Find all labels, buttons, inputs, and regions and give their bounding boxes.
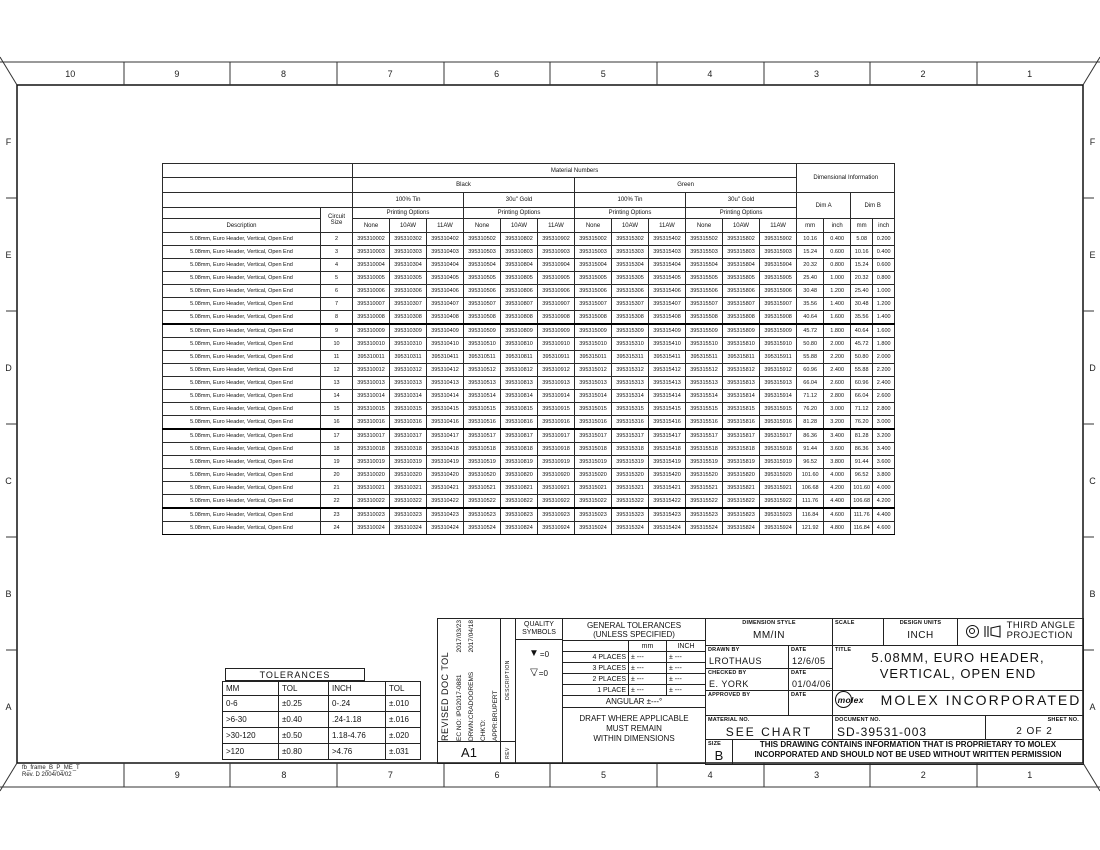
part-number-cell: 395315806 [723,285,760,298]
part-number-cell: 395310411 [427,351,464,364]
part-number-cell: 395310415 [427,403,464,416]
part-number-cell: 395315408 [649,311,686,325]
proprietary-line: THIS DRAWING CONTAINS INFORMATION THAT I… [733,740,1083,750]
part-number-cell: 395315017 [575,429,612,443]
part-number-cell: 395310307 [390,298,427,311]
options-header: Printing Options [686,208,797,219]
zone-label: 8 [230,69,337,79]
part-number-cell: 395310418 [427,443,464,456]
part-number-cell: 395310407 [427,298,464,311]
dim-b-inch-cell: 4.200 [873,495,895,509]
part-number-cell: 395315005 [575,272,612,285]
stamp-line: Rev. D 2004/04/02 [22,772,80,779]
part-number-cell: 395315018 [575,443,612,456]
circuit-size-cell: 6 [321,285,353,298]
quality-symbol-value: =0 [539,669,548,678]
zone-label: 9 [124,69,231,79]
gt-blank-cell [563,641,629,652]
dim-a-mm-cell: 116.84 [797,508,824,522]
part-number-cell: 395315524 [686,522,723,535]
part-number-cell: 395315424 [649,522,686,535]
option-11aw-header: 11AW [760,219,797,233]
options-header: Printing Options [575,208,686,219]
part-number-cell: 395310021 [353,482,390,495]
part-number-cell: 395310914 [538,390,575,403]
dim-a-inch-cell: 3.800 [824,456,851,469]
part-number-cell: 395315314 [612,390,649,403]
part-number-cell: 395315817 [723,429,760,443]
projection-text: PROJECTION [1007,631,1076,641]
part-number-cell: 395315022 [575,495,612,509]
part-number-cell: 395315502 [686,233,723,246]
part-number-cell: 395310323 [390,508,427,522]
part-number-cell: 395310911 [538,351,575,364]
part-number-cell: 395310002 [353,233,390,246]
part-number-cell: 395315812 [723,364,760,377]
part-number-cell: 395310815 [501,403,538,416]
part-number-cell: 395310305 [390,272,427,285]
part-number-cell: 395310913 [538,377,575,390]
dim-a-mm-cell: 121.92 [797,522,824,535]
dim-a-mm-cell: 81.28 [797,416,824,430]
part-number-cell: 395310809 [501,324,538,338]
dim-a-mm-cell: 91.44 [797,443,824,456]
part-number-cell: 395315421 [649,482,686,495]
zone-label: A [2,650,15,763]
part-number-cell: 395310319 [390,456,427,469]
zone-label: D [1086,311,1099,424]
table-row: 5.08mm, Euro Header, Vertical, Open End … [163,522,895,535]
part-number-cell: 395310022 [353,495,390,509]
size-cell: SIZE B [706,740,733,765]
option-10aw-header: 10AW [501,219,538,233]
dim-b-mm-cell: 111.76 [851,508,873,522]
proprietary-notice: THIS DRAWING CONTAINS INFORMATION THAT I… [733,740,1084,765]
part-number-cell: 395315311 [612,351,649,364]
dim-b-mm-cell: 116.84 [851,522,873,535]
part-number-cell: 395310920 [538,469,575,482]
circuit-size-cell: 4 [321,259,353,272]
part-number-cell: 395310403 [427,246,464,259]
part-number-cell: 395310006 [353,285,390,298]
circuit-size-cell: 22 [321,495,353,509]
part-number-cell: 395310905 [538,272,575,285]
part-number-cell: 395310306 [390,285,427,298]
dim-b-inch-cell: 2.600 [873,390,895,403]
dim-b-inch-cell: 2.800 [873,403,895,416]
part-number-cell: 395315324 [612,522,649,535]
part-number-cell: 395315823 [723,508,760,522]
part-number-cell: 395310805 [501,272,538,285]
dim-a-inch-cell: 2.200 [824,351,851,364]
part-number-cell: 395315020 [575,469,612,482]
part-number-cell: 395315415 [649,403,686,416]
plating-header-tin: 100% Tin [353,193,464,208]
part-number-cell: 395310024 [353,522,390,535]
zone-label: 5 [550,770,657,780]
table-row: 5.08mm, Euro Header, Vertical, Open End … [163,285,895,298]
part-number-cell: 395310902 [538,233,575,246]
part-number-cell: 395310014 [353,390,390,403]
part-number-cell: 395315015 [575,403,612,416]
part-number-cell: 395315316 [612,416,649,430]
part-number-cell: 395310302 [390,233,427,246]
part-number-cell: 395310803 [501,246,538,259]
dim-b-inch-cell: 1.200 [873,298,895,311]
checked-date-cell: DATE 01/04/06 [789,669,833,691]
gt-mm-value: ± --- [629,685,667,696]
part-number-cell: 395315321 [612,482,649,495]
color-header-green: Green [575,178,797,193]
zone-label: 2 [870,69,977,79]
tol-cell: ±0.40 [279,712,329,728]
dim-a-inch-cell: 4.000 [824,469,851,482]
circuit-size-cell: 23 [321,508,353,522]
tol-cell: 1.18-4.76 [329,728,386,744]
zone-label: 1 [977,770,1084,780]
table-row: 5.08mm, Euro Header, Vertical, Open End … [163,246,895,259]
sheet-no-label: SHEET NO. [1048,717,1079,723]
date-label: DATE [791,670,806,676]
part-number-cell: 395310520 [464,469,501,482]
option-none-header: None [686,219,723,233]
option-10aw-header: 10AW [390,219,427,233]
part-number-cell: 395315910 [760,338,797,351]
table-row: 5.08mm, Euro Header, Vertical, Open End … [163,416,895,430]
dim-a-mm-cell: 20.32 [797,259,824,272]
part-number-cell: 395310017 [353,429,390,443]
part-number-cell: 395310310 [390,338,427,351]
options-header: Printing Options [353,208,464,219]
dim-b-mm-cell: 86.36 [851,443,873,456]
part-number-cell: 395310507 [464,298,501,311]
description-cell: 5.08mm, Euro Header, Vertical, Open End [163,390,321,403]
company-name: MOLEX INCORPORATED [881,692,1082,708]
part-number-cell: 395315820 [723,469,760,482]
description-cell: 5.08mm, Euro Header, Vertical, Open End [163,508,321,522]
part-number-cell: 395310523 [464,508,501,522]
part-number-cell: 395310512 [464,364,501,377]
zone-label: 4 [657,770,764,780]
gt-row-label: 3 PLACES [563,663,629,674]
dim-a-inch-cell: 2.800 [824,390,851,403]
tol-col-header: MM [223,682,279,696]
circuit-size-header: Circuit Size [321,208,353,233]
part-number-cell: 395310519 [464,456,501,469]
description-cell: 5.08mm, Euro Header, Vertical, Open End [163,259,321,272]
part-number-cell: 395315307 [612,298,649,311]
zone-label: 7 [337,69,444,79]
general-tolerances-subtitle: (UNLESS SPECIFIED) [563,630,705,639]
part-number-cell: 395310308 [390,311,427,325]
part-number-cell: 395315805 [723,272,760,285]
document-no-label: DOCUMENT NO. [835,717,880,723]
dim-a-mm-cell: 71.12 [797,390,824,403]
dim-a-mm-cell: 76.20 [797,403,824,416]
part-number-cell: 395310420 [427,469,464,482]
dim-b-header: Dim B [851,193,895,219]
part-number-cell: 395310824 [501,522,538,535]
zone-label: 4 [657,69,764,79]
part-number-cell: 395310406 [427,285,464,298]
circuit-size-cell: 19 [321,456,353,469]
part-number-cell: 395315906 [760,285,797,298]
part-number-cell: 395310303 [390,246,427,259]
tol-cell: 0-.24 [329,696,386,712]
part-number-cell: 395310518 [464,443,501,456]
part-number-cell: 395315422 [649,495,686,509]
part-number-cell: 395315013 [575,377,612,390]
part-number-cell: 395310514 [464,390,501,403]
part-number-cell: 395315405 [649,272,686,285]
circuit-size-cell: 11 [321,351,353,364]
zone-label: C [1086,424,1099,537]
circuit-size-cell: 18 [321,443,353,456]
description-cell: 5.08mm, Euro Header, Vertical, Open End [163,285,321,298]
option-none-header: None [575,219,612,233]
tol-cell: ±.010 [386,696,421,712]
dim-b-inch-cell: 1.000 [873,285,895,298]
dim-a-inch-cell: 0.400 [824,233,851,246]
description-cell: 5.08mm, Euro Header, Vertical, Open End [163,403,321,416]
part-number-cell: 395310917 [538,429,575,443]
part-number-cell: 395310511 [464,351,501,364]
part-number-cell: 395310906 [538,285,575,298]
quality-title: QUALITY [516,621,562,629]
part-number-cell: 395315507 [686,298,723,311]
part-number-cell: 395315815 [723,403,760,416]
part-number-cell: 395310807 [501,298,538,311]
part-number-cell: 395310907 [538,298,575,311]
part-number-cell: 395310522 [464,495,501,509]
dim-b-mm-cell: 91.44 [851,456,873,469]
revision-block: REVISED DOC TOL EC NO: IPG2017-0881 2017… [438,619,501,742]
part-number-cell: 395315003 [575,246,612,259]
dim-a-mm-cell: 15.24 [797,246,824,259]
part-number-cell: 395310316 [390,416,427,430]
gt-inch-value: ± --- [667,652,706,663]
part-number-cell: 395315510 [686,338,723,351]
part-number-cell: 395315809 [723,324,760,338]
part-number-cell: 395310517 [464,429,501,443]
option-10aw-header: 10AW [612,219,649,233]
dim-a-mm-cell: 60.96 [797,364,824,377]
zone-label: E [2,198,15,311]
unit-header-mm: mm [851,219,873,233]
part-number-cell: 395315506 [686,285,723,298]
dim-a-inch-cell: 1.200 [824,285,851,298]
part-number-cell: 395310008 [353,311,390,325]
dim-b-inch-cell: 3.400 [873,443,895,456]
dim-a-inch-cell: 1.000 [824,272,851,285]
circuit-size-cell: 12 [321,364,353,377]
checked-by-label: CHECKED BY [708,670,746,676]
part-number-cell: 395315512 [686,364,723,377]
part-number-cell: 395310416 [427,416,464,430]
zone-label: 3 [763,770,870,780]
part-number-cell: 395315909 [760,324,797,338]
part-number-cell: 395315503 [686,246,723,259]
part-number-cell: 395315016 [575,416,612,430]
part-number-cell: 395310814 [501,390,538,403]
revision-checked: CHK'D: [480,720,487,741]
dim-a-inch-cell: 3.400 [824,429,851,443]
dim-b-inch-cell: 0.800 [873,272,895,285]
part-number-cell: 395310806 [501,285,538,298]
part-number-cell: 395310820 [501,469,538,482]
part-number-cell: 395315816 [723,416,760,430]
molex-logo-text: molex [838,695,864,705]
tol-cell: >4.76 [329,744,386,760]
part-number-cell: 395315905 [760,272,797,285]
part-number-cell: 395315007 [575,298,612,311]
part-number-cell: 395315412 [649,364,686,377]
dim-a-inch-cell: 1.800 [824,324,851,338]
unit-header-inch: inch [824,219,851,233]
part-number-cell: 395315019 [575,456,612,469]
design-units-cell: DESIGN UNITS INCH [884,619,958,646]
dim-a-inch-cell: 3.000 [824,403,851,416]
revision-letter: A1 [438,742,501,764]
part-number-cell: 395310016 [353,416,390,430]
dim-a-inch-cell: 2.400 [824,364,851,377]
description-cell: 5.08mm, Euro Header, Vertical, Open End [163,456,321,469]
zone-label: F [2,85,15,198]
part-number-cell: 395315002 [575,233,612,246]
part-number-cell: 395310521 [464,482,501,495]
dim-b-mm-cell: 106.68 [851,495,873,509]
part-number-cell: 395310912 [538,364,575,377]
drawing-sheet: 10987654321 987654321 FEDCBA FEDCBA fb_f… [0,0,1100,850]
dim-a-mm-cell: 66.04 [797,377,824,390]
part-number-cell: 395315921 [760,482,797,495]
part-number-cell: 395315915 [760,403,797,416]
part-number-cell: 395315004 [575,259,612,272]
part-number-cell: 395310918 [538,443,575,456]
tol-cell: >120 [223,744,279,760]
options-header: Printing Options [464,208,575,219]
draft-note-line: MUST REMAIN [563,724,705,734]
quality-title: SYMBOLS [516,629,562,637]
quality-symbol-value: =0 [540,650,549,659]
part-number-cell: 395315516 [686,416,723,430]
part-number-cell: 395315919 [760,456,797,469]
part-number-cell: 395315918 [760,443,797,456]
part-number-cell: 395310020 [353,469,390,482]
part-number-cell: 395310409 [427,324,464,338]
tol-cell: ±0.50 [279,728,329,744]
description-cell: 5.08mm, Euro Header, Vertical, Open End [163,311,321,325]
gt-mm-value: ± --- [629,652,667,663]
part-number-cell: 395315404 [649,259,686,272]
part-number-cell: 395315523 [686,508,723,522]
tolerance-row: >120 ±0.80 >4.76 ±.031 [223,744,421,760]
title-block-right: DIMENSION STYLE MM/IN SCALE DESIGN UNITS… [705,618,1084,765]
part-number-cell: 395315808 [723,311,760,325]
frame-template-stamp: fb_frame_B_P_ME_T Rev. D 2004/04/02 [22,765,80,779]
dim-a-inch-cell: 0.800 [824,259,851,272]
angular-tolerance: ANGULAR ±---° [563,696,706,708]
zone-label: 8 [231,770,338,780]
table-row: 5.08mm, Euro Header, Vertical, Open End … [163,403,895,416]
part-number-cell: 395310821 [501,482,538,495]
part-number-cell: 395310513 [464,377,501,390]
dim-b-mm-cell: 10.16 [851,246,873,259]
part-number-cell: 395315818 [723,443,760,456]
option-11aw-header: 11AW [538,219,575,233]
circuit-size-cell: 15 [321,403,353,416]
material-numbers-header: Material Numbers [353,164,797,178]
dim-b-mm-cell: 55.88 [851,364,873,377]
part-number-cell: 395310508 [464,311,501,325]
part-number-cell: 395310018 [353,443,390,456]
dim-a-inch-cell: 4.600 [824,508,851,522]
circuit-size-cell: 10 [321,338,353,351]
part-number-cell: 395315822 [723,495,760,509]
part-number-cell: 395315914 [760,390,797,403]
stamp-line: fb_frame_B_P_ME_T [22,765,80,772]
drawing-title-line: VERTICAL, OPEN END [880,666,1036,682]
dim-b-inch-cell: 2.200 [873,364,895,377]
tol-col-header: INCH [329,682,386,696]
dim-b-inch-cell: 3.200 [873,429,895,443]
description-cell: 5.08mm, Euro Header, Vertical, Open End [163,298,321,311]
dim-b-mm-cell: 81.28 [851,429,873,443]
part-number-cell: 395310317 [390,429,427,443]
part-number-cell: 395310817 [501,429,538,443]
dim-b-inch-cell: 4.400 [873,508,895,522]
part-number-cell: 395310402 [427,233,464,246]
tol-col-header: TOL [279,682,329,696]
part-number-cell: 395315416 [649,416,686,430]
circuit-size-cell: 16 [321,416,353,430]
part-number-cell: 395315819 [723,456,760,469]
description-cell: 5.08mm, Euro Header, Vertical, Open End [163,443,321,456]
part-number-cell: 395310506 [464,285,501,298]
part-number-cell: 395315006 [575,285,612,298]
part-number-cell: 395310023 [353,508,390,522]
part-number-cell: 395315407 [649,298,686,311]
zone-label: C [2,424,15,537]
dim-b-mm-cell: 5.08 [851,233,873,246]
dim-b-inch-cell: 4.000 [873,482,895,495]
dim-a-inch-cell: 0.600 [824,246,851,259]
revision-drawn: DRWN:CRADOOREMS [468,672,475,741]
draft-note-line: WITHIN DIMENSIONS [563,734,705,744]
dim-b-mm-cell: 50.80 [851,351,873,364]
part-number-cell: 395315515 [686,403,723,416]
table-row: 5.08mm, Euro Header, Vertical, Open End … [163,508,895,522]
part-number-cell: 395315916 [760,416,797,430]
checked-by-cell: CHECKED BY E. YORK [706,669,789,691]
circuit-size-cell: 20 [321,469,353,482]
general-tolerances-header: GENERAL TOLERANCES (UNLESS SPECIFIED) [563,619,706,641]
table-row: 5.08mm, Euro Header, Vertical, Open End … [163,311,895,325]
part-number-cell: 395315911 [760,351,797,364]
filled-triangle-icon: ▼ [529,649,539,659]
description-cell: 5.08mm, Euro Header, Vertical, Open End [163,429,321,443]
zone-label: B [1086,537,1099,650]
part-number-cell: 395310011 [353,351,390,364]
part-number-cell: 395310910 [538,338,575,351]
gt-inch-value: ± --- [667,663,706,674]
approved-by-label: APPROVED BY [708,692,750,698]
part-number-cell: 395315511 [686,351,723,364]
part-number-cell: 395310502 [464,233,501,246]
part-number-cell: 395310903 [538,246,575,259]
part-number-cell: 395315912 [760,364,797,377]
revision-ec-no: EC NO: IPG2017-0881 [456,675,463,741]
